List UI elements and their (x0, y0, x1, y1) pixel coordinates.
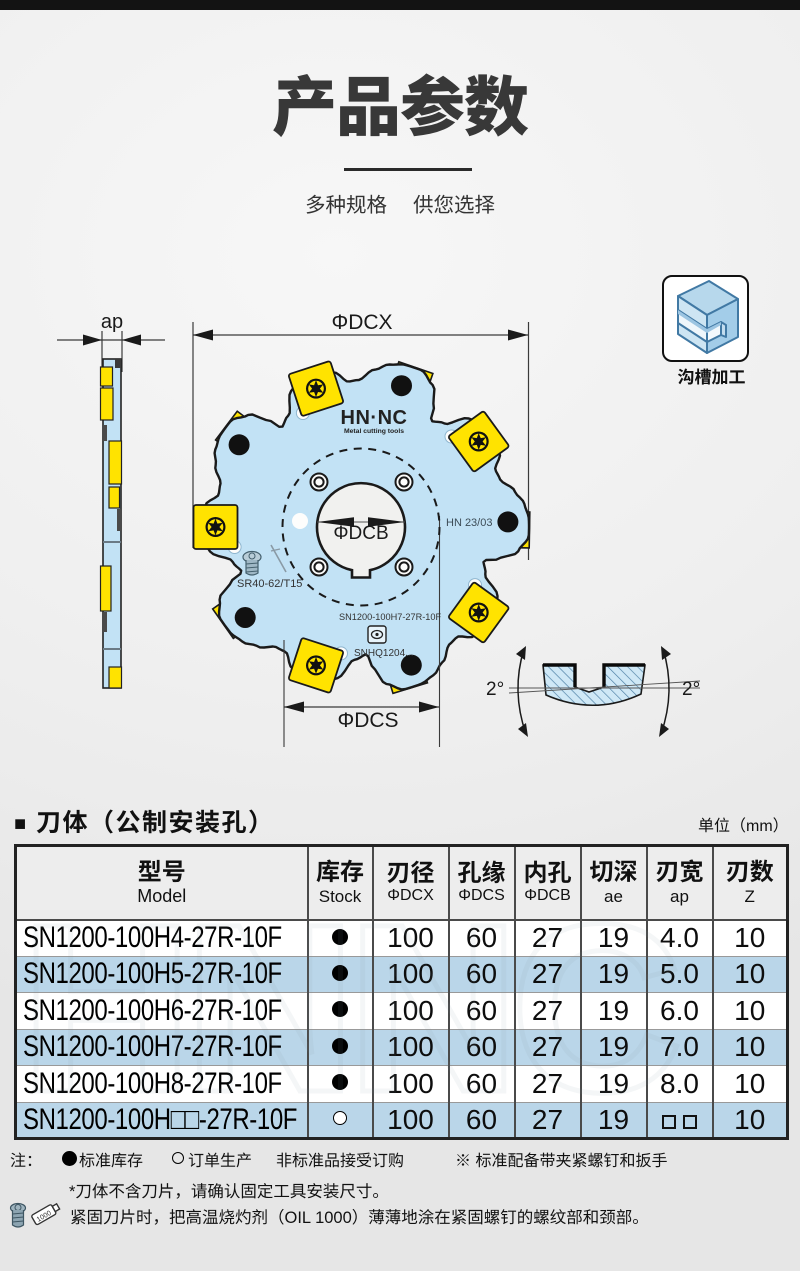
svg-text:ΦDCB: ΦDCB (333, 523, 388, 544)
svg-text:ΦDCS: ΦDCS (337, 709, 398, 732)
svg-text:2°: 2° (486, 679, 504, 700)
svg-text:SN1200-100H7-27R-10F: SN1200-100H7-27R-10F (339, 612, 442, 622)
svg-text:ΦDCX: ΦDCX (331, 311, 392, 334)
svg-text:SR40-62/T15: SR40-62/T15 (237, 578, 302, 590)
svg-text:HN 23/03: HN 23/03 (446, 517, 492, 529)
svg-text:ap: ap (101, 311, 123, 333)
svg-text:2°: 2° (682, 679, 700, 700)
svg-text:SNHQ1204...: SNHQ1204... (354, 648, 413, 659)
svg-text:Metal cutting tools: Metal cutting tools (344, 428, 404, 435)
svg-text:HN·NC: HN·NC (341, 407, 408, 429)
